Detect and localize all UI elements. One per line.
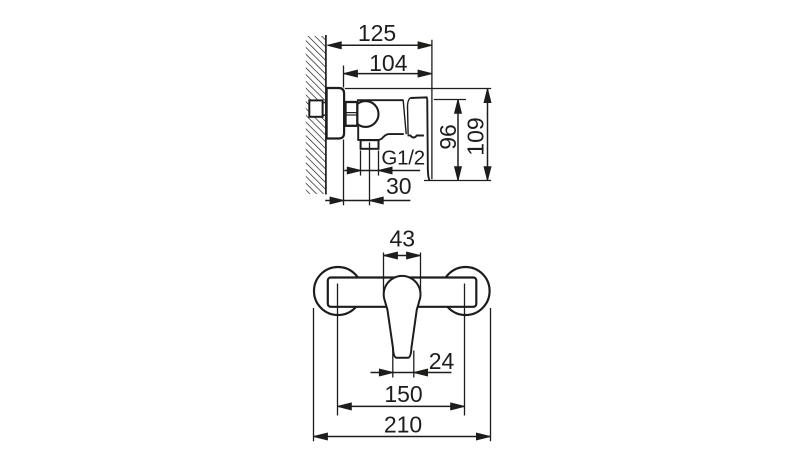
- svg-text:43: 43: [390, 226, 416, 252]
- svg-text:30: 30: [386, 173, 412, 199]
- svg-text:109: 109: [463, 117, 489, 155]
- svg-text:96: 96: [435, 124, 461, 150]
- svg-text:24: 24: [429, 348, 455, 374]
- svg-text:G1/2: G1/2: [381, 147, 425, 170]
- svg-text:125: 125: [358, 20, 396, 46]
- svg-text:150: 150: [384, 381, 422, 407]
- svg-text:104: 104: [369, 50, 408, 76]
- svg-text:210: 210: [384, 412, 422, 438]
